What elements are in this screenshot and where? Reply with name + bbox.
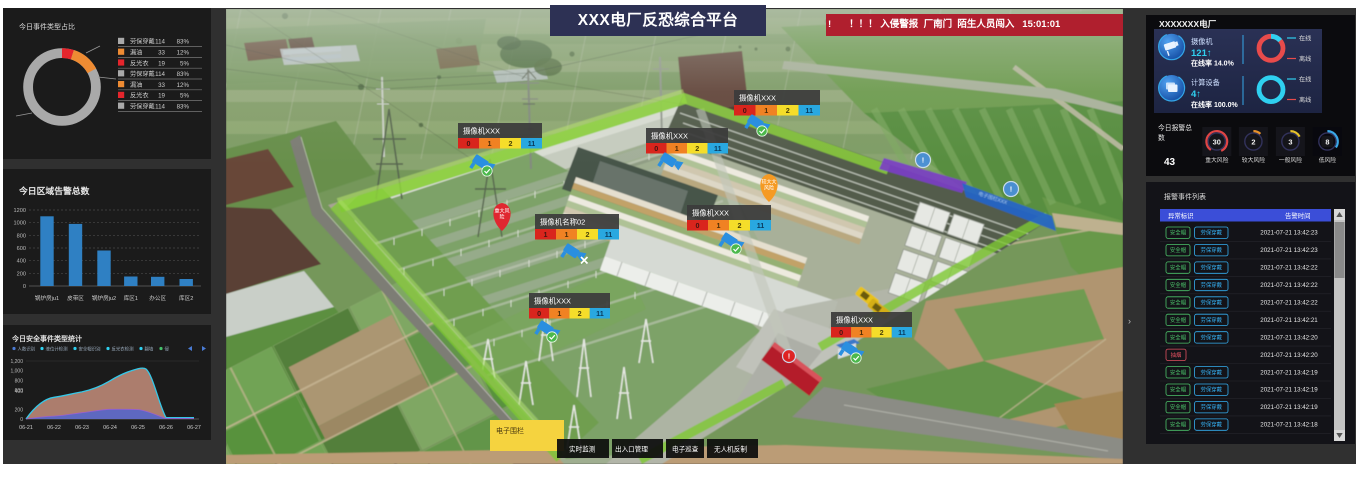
svg-text:漏油: 漏油	[130, 81, 142, 89]
svg-text:11: 11	[596, 309, 604, 318]
svg-text:2021-07-21 13:42:19: 2021-07-21 13:42:19	[1260, 369, 1318, 376]
svg-text:3: 3	[1288, 137, 1292, 146]
svg-text:2021-07-21 13:42:19: 2021-07-21 13:42:19	[1260, 404, 1318, 411]
svg-text:2: 2	[880, 328, 884, 337]
svg-text:摄像机XXX: 摄像机XXX	[534, 297, 571, 306]
svg-text:1: 1	[488, 139, 492, 148]
svg-text:劳保穿戴: 劳保穿戴	[1201, 403, 1223, 411]
svg-text:低风险: 低风险	[1319, 156, 1337, 164]
svg-text:2021-07-21 13:42:20: 2021-07-21 13:42:20	[1260, 334, 1318, 341]
svg-text:实时监测: 实时监测	[569, 445, 596, 454]
svg-text:83%: 83%	[177, 104, 190, 111]
svg-text:!: !	[922, 156, 925, 165]
svg-text:劳保穿戴: 劳保穿戴	[130, 70, 155, 78]
svg-text:摄像机XXX: 摄像机XXX	[739, 94, 776, 103]
svg-text:出入口管理: 出入口管理	[615, 445, 648, 454]
svg-text:2021-07-21 13:42:21: 2021-07-21 13:42:21	[1260, 317, 1318, 324]
svg-text:XXXXXXX电厂: XXXXXXX电厂	[1159, 18, 1217, 29]
svg-text:摄像机XXX: 摄像机XXX	[651, 132, 688, 141]
svg-text:劳保穿戴: 劳保穿戴	[1201, 264, 1223, 272]
svg-text:险: 险	[499, 214, 504, 221]
svg-text:!: !	[788, 352, 791, 361]
svg-text:30: 30	[1213, 137, 1221, 146]
svg-text:安全帽: 安全帽	[1170, 316, 1187, 324]
svg-text:1,000: 1,000	[10, 369, 23, 375]
svg-text:液位计检测: 液位计检测	[46, 345, 69, 352]
svg-text:2: 2	[509, 139, 513, 148]
svg-text:83%: 83%	[177, 39, 190, 46]
svg-text:劳保穿戴: 劳保穿戴	[1201, 316, 1223, 324]
svg-text:劳保穿戴: 劳保穿戴	[130, 38, 155, 46]
svg-text:劳保穿戴: 劳保穿戴	[1201, 368, 1223, 376]
svg-text:摄像机名称02: 摄像机名称02	[540, 218, 585, 227]
svg-text:离线: 离线	[1299, 96, 1311, 104]
svg-text:库区2: 库区2	[179, 294, 193, 302]
svg-text:0: 0	[696, 221, 700, 230]
svg-text:皮带区: 皮带区	[67, 294, 84, 302]
svg-text:摄像机XXX: 摄像机XXX	[463, 127, 500, 136]
svg-text:锅炉房ju1: 锅炉房ju1	[35, 294, 59, 302]
svg-text:反光衣: 反光衣	[130, 92, 149, 100]
svg-text:今日报警总: 今日报警总	[1158, 123, 1192, 132]
svg-text:今日安全事件类型统计: 今日安全事件类型统计	[11, 334, 82, 343]
svg-text:库区1: 库区1	[124, 294, 138, 302]
svg-text:83%: 83%	[177, 71, 190, 78]
svg-text:2: 2	[738, 221, 742, 230]
svg-text:2021-07-21 13:42:19: 2021-07-21 13:42:19	[1260, 387, 1318, 394]
svg-text:较大风险: 较大风险	[1242, 156, 1265, 164]
svg-text:风险: 风险	[764, 185, 774, 192]
svg-text:06-26: 06-26	[159, 425, 173, 431]
svg-text:06-22: 06-22	[47, 425, 61, 431]
svg-text:摄像机: 摄像机	[1191, 37, 1213, 46]
svg-text:侵: 侵	[165, 345, 170, 352]
svg-text:2: 2	[786, 106, 790, 115]
svg-text:11: 11	[714, 144, 722, 153]
svg-text:锅炉房ju2: 锅炉房ju2	[92, 294, 116, 302]
svg-text:反光衣: 反光衣	[130, 59, 149, 67]
svg-text:0: 0	[743, 106, 747, 115]
svg-text:1: 1	[544, 230, 548, 239]
svg-text:33: 33	[158, 50, 165, 57]
svg-text:在线: 在线	[1299, 35, 1311, 43]
svg-text:安全帽: 安全帽	[1170, 333, 1187, 341]
svg-text:11: 11	[528, 139, 536, 148]
svg-text:摄像机XXX: 摄像机XXX	[836, 316, 873, 325]
svg-text:摄像机XXX: 摄像机XXX	[692, 209, 729, 218]
svg-text:一般风险: 一般风险	[1279, 156, 1302, 164]
svg-text:1: 1	[675, 144, 679, 153]
svg-text:06-24: 06-24	[103, 425, 117, 431]
svg-text:114: 114	[155, 39, 165, 46]
svg-text:1: 1	[764, 106, 768, 115]
svg-text:06-27: 06-27	[187, 425, 201, 431]
svg-text:1,200: 1,200	[10, 359, 23, 365]
svg-text:0: 0	[537, 309, 541, 318]
svg-text:离线: 离线	[1299, 55, 1311, 63]
svg-text:200: 200	[17, 271, 26, 277]
svg-text:800: 800	[15, 378, 24, 384]
svg-text:劳保穿戴: 劳保穿戴	[1201, 333, 1223, 341]
svg-text:200: 200	[15, 407, 24, 413]
svg-text:400: 400	[15, 389, 24, 395]
svg-text:安全帽: 安全帽	[1170, 386, 1187, 394]
svg-text:114: 114	[155, 71, 165, 78]
svg-text:在线率 14.0%: 在线率 14.0%	[1191, 59, 1235, 68]
svg-text:06-25: 06-25	[131, 425, 145, 431]
svg-text:1: 1	[557, 309, 561, 318]
svg-text:漏油: 漏油	[130, 49, 142, 57]
svg-text:较大大: 较大大	[761, 179, 776, 186]
svg-text:0: 0	[467, 139, 471, 148]
svg-text:2021-07-21 13:42:22: 2021-07-21 13:42:22	[1260, 265, 1318, 272]
svg-text:43: 43	[1164, 157, 1176, 168]
svg-text:5%: 5%	[180, 60, 189, 67]
svg-text:安全帽识别: 安全帽识别	[79, 345, 101, 352]
svg-text:4↑: 4↑	[1191, 89, 1201, 100]
svg-text:2: 2	[586, 230, 590, 239]
svg-text:06-21: 06-21	[19, 425, 33, 431]
svg-text:19: 19	[158, 60, 165, 67]
svg-text:告警时间: 告警时间	[1285, 211, 1311, 220]
svg-text:11: 11	[898, 328, 906, 337]
svg-text:安全帽: 安全帽	[1170, 368, 1187, 376]
svg-text:无人机反制: 无人机反制	[714, 445, 747, 454]
svg-text:11: 11	[605, 230, 613, 239]
svg-text:安全帽: 安全帽	[1170, 299, 1187, 307]
svg-text:2021-07-21 13:42:22: 2021-07-21 13:42:22	[1260, 300, 1318, 307]
svg-text:0: 0	[654, 144, 658, 153]
svg-text:在线率 100.0%: 在线率 100.0%	[1191, 100, 1238, 109]
svg-text:800: 800	[17, 233, 26, 239]
svg-text:8: 8	[1325, 137, 1329, 146]
svg-text:0: 0	[839, 328, 843, 337]
svg-text:劳保穿戴: 劳保穿戴	[1201, 421, 1223, 429]
svg-text:电子围栏: 电子围栏	[496, 426, 524, 435]
svg-text:1000: 1000	[14, 221, 26, 227]
svg-text:人数识别: 人数识别	[18, 345, 36, 352]
svg-text:2: 2	[1251, 137, 1255, 146]
svg-text:06-23: 06-23	[75, 425, 89, 431]
svg-text:在线: 在线	[1299, 76, 1311, 84]
svg-text:劳保穿戴: 劳保穿戴	[1201, 246, 1223, 254]
svg-text:今日区域告警总数: 今日区域告警总数	[18, 185, 90, 196]
svg-text:翻墙: 翻墙	[145, 345, 154, 352]
svg-text:2021-07-21 13:42:23: 2021-07-21 13:42:23	[1260, 247, 1318, 254]
svg-text:600: 600	[17, 246, 26, 252]
svg-text:重大风险: 重大风险	[1205, 156, 1228, 164]
svg-text:劳保穿戴: 劳保穿戴	[1201, 386, 1223, 394]
svg-text:今日事件类型占比: 今日事件类型占比	[19, 22, 75, 31]
svg-text:2: 2	[695, 144, 699, 153]
svg-text:2: 2	[578, 309, 582, 318]
svg-text:劳保穿戴: 劳保穿戴	[1201, 281, 1223, 289]
svg-text:12%: 12%	[177, 82, 190, 89]
svg-text:数: 数	[1158, 133, 1165, 142]
svg-text:劳保穿戴: 劳保穿戴	[1201, 229, 1223, 237]
svg-text:1200: 1200	[14, 208, 26, 214]
svg-text:办公区: 办公区	[149, 294, 166, 302]
svg-text:1: 1	[717, 221, 721, 230]
svg-text:安全帽: 安全帽	[1170, 246, 1187, 254]
svg-text:1: 1	[565, 230, 569, 239]
svg-text:报警事件列表: 报警事件列表	[1164, 192, 1206, 201]
svg-text:反光衣检测: 反光衣检测	[112, 345, 135, 352]
svg-text:2021-07-21 13:42:20: 2021-07-21 13:42:20	[1260, 352, 1318, 359]
svg-text:0: 0	[20, 417, 23, 423]
svg-text:劳保穿戴: 劳保穿戴	[1201, 299, 1223, 307]
svg-text:5%: 5%	[180, 93, 189, 100]
svg-text:!: !	[1010, 185, 1013, 194]
svg-text:12%: 12%	[177, 50, 190, 57]
svg-text:11: 11	[757, 221, 765, 230]
svg-text:2021-07-21 13:42:18: 2021-07-21 13:42:18	[1260, 422, 1318, 429]
svg-text:电子巡查: 电子巡查	[672, 445, 699, 454]
svg-text:11: 11	[805, 106, 813, 115]
svg-text:抽烟: 抽烟	[1171, 351, 1182, 359]
svg-text:安全帽: 安全帽	[1170, 281, 1187, 289]
svg-text:1: 1	[859, 328, 863, 337]
svg-text:0: 0	[23, 284, 26, 290]
svg-text:安全帽: 安全帽	[1170, 264, 1187, 272]
svg-text:计算设备: 计算设备	[1191, 78, 1220, 87]
svg-text:33: 33	[158, 82, 165, 89]
svg-text:2021-07-21 13:42:22: 2021-07-21 13:42:22	[1260, 282, 1318, 289]
svg-text:劳保穿戴: 劳保穿戴	[130, 103, 155, 111]
svg-text:400: 400	[17, 259, 26, 265]
svg-text:121↑: 121↑	[1191, 48, 1212, 59]
svg-text:安全帽: 安全帽	[1170, 403, 1187, 411]
svg-text:19: 19	[158, 93, 165, 100]
svg-text:114: 114	[155, 104, 165, 111]
svg-text:2021-07-21 13:42:23: 2021-07-21 13:42:23	[1260, 230, 1318, 237]
svg-text:异常标识: 异常标识	[1168, 211, 1194, 220]
svg-text:安全帽: 安全帽	[1170, 421, 1187, 429]
svg-text:重大风: 重大风	[494, 208, 509, 215]
svg-text:安全帽: 安全帽	[1170, 229, 1187, 237]
